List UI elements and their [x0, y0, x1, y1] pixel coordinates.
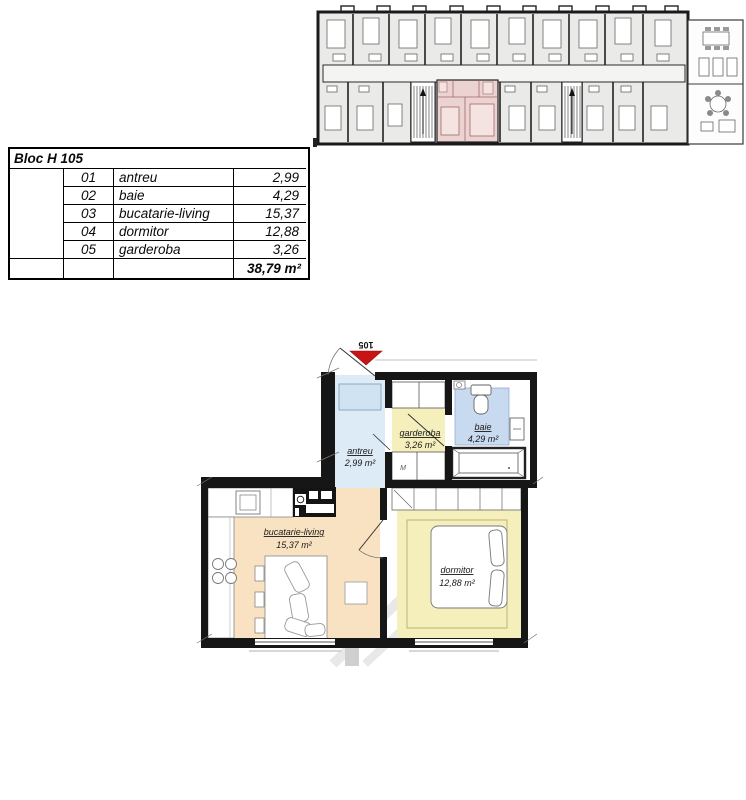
antreu-furniture [339, 384, 381, 410]
bucatarie-area: 15,37 m² [276, 540, 313, 550]
dormitor-area: 12,88 m² [439, 578, 476, 588]
row-area: 3,26 [234, 241, 306, 259]
footer-blank [114, 259, 234, 278]
wall-top [375, 372, 537, 380]
unit-marker: 105 [350, 342, 382, 365]
entrance-arrow-icon [350, 351, 382, 365]
row-area: 12,88 [234, 223, 306, 241]
table-header: Bloc H 105 [10, 149, 306, 169]
baie-label: baie [474, 422, 491, 432]
wall-right-upper [530, 372, 537, 480]
wall-left [201, 482, 208, 648]
pillow-icon [488, 570, 504, 607]
row-name: antreu [114, 169, 234, 187]
antreu-label: antreu [347, 446, 373, 456]
edge-tick [313, 138, 317, 147]
floorplan-sheet: { "table": { "header": "Bloc H 105", "ro… [0, 0, 746, 800]
wall-antreu-garderoba-lower [385, 452, 392, 488]
row-area: 15,37 [234, 205, 306, 223]
terrace-annex [688, 20, 743, 144]
row-number: 03 [64, 205, 114, 223]
side-table-icon [345, 582, 367, 604]
row-number: 01 [64, 169, 114, 187]
washing-machine-label: M [400, 465, 406, 472]
wall-garderoba-baie-upper [445, 375, 452, 415]
corridor [323, 65, 685, 82]
wall-kitchen-top [201, 477, 335, 488]
toilet-icon [471, 385, 491, 395]
unit-number: 105 [358, 342, 373, 350]
row-name: bucatarie-living [114, 205, 234, 223]
wall-right-lower [521, 488, 528, 640]
footer-blank [10, 259, 64, 278]
wall-living-dormitor-lower [380, 557, 387, 640]
pillow-icon [488, 529, 504, 566]
wall-antreu-left [321, 372, 335, 488]
dormitor-label: dormitor [440, 565, 474, 575]
entrance-door-arc [328, 348, 340, 375]
total-area: 38,79 m² [234, 259, 306, 278]
overview-svg [313, 2, 746, 148]
area-table: Bloc H 105 01 antreu 2,99 02 baie 4,29 0… [8, 147, 310, 280]
building-overview-plan [313, 2, 746, 148]
footer-blank [64, 259, 114, 278]
kitchen-wall-unit [293, 487, 336, 517]
chairs [255, 566, 264, 633]
baie-area: 4,29 m² [468, 434, 500, 444]
row-number: 02 [64, 187, 114, 205]
row-name: baie [114, 187, 234, 205]
row-number: 05 [64, 241, 114, 259]
antreu-area: 2,99 m² [344, 458, 377, 468]
stairwell-right [562, 82, 582, 142]
detail-svg: 105 antreu 2,99 m² garderoba 3,26 m² bai… [193, 342, 543, 667]
highlighted-unit-105 [437, 80, 498, 142]
garderoba-area: 3,26 m² [405, 440, 437, 450]
wall-bath-bottom [385, 480, 537, 488]
row-name: garderoba [114, 241, 234, 259]
wall-garderoba-baie-lower [445, 446, 452, 480]
wall-living-dormitor-upper [380, 488, 387, 520]
row-area: 4,29 [234, 187, 306, 205]
bucatarie-label: bucatarie-living [264, 527, 325, 537]
table-blank-column [10, 169, 64, 259]
stairwell-left [411, 82, 435, 142]
row-number: 04 [64, 223, 114, 241]
wall-antreu-garderoba-upper [385, 372, 392, 408]
garderoba-label: garderoba [399, 428, 440, 438]
row-name: dormitor [114, 223, 234, 241]
apartment-detail-plan: 105 antreu 2,99 m² garderoba 3,26 m² bai… [193, 342, 543, 667]
row-area: 2,99 [234, 169, 306, 187]
